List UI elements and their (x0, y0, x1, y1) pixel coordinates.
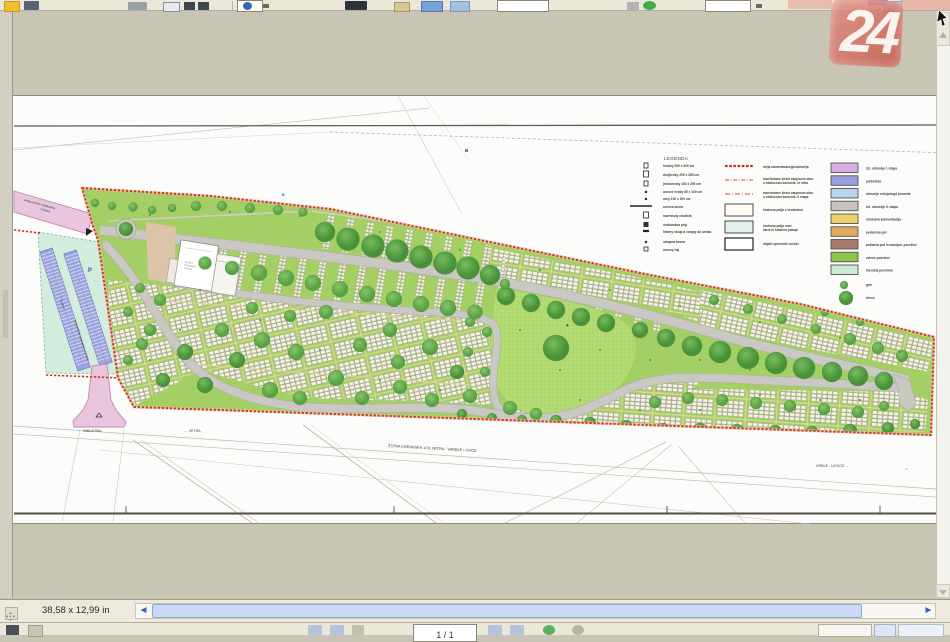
svg-text:dvojhroby 200 x 280 cm: dvojhroby 200 x 280 cm (663, 173, 699, 177)
svg-text:VRBLE - LEVICE →: VRBLE - LEVICE → (816, 464, 849, 468)
svg-text:B: B (282, 193, 285, 197)
svg-text:hrobky 200 x 300 cm: hrobky 200 x 300 cm (663, 164, 694, 168)
svg-text:+: + (566, 323, 569, 329)
svg-text:žel. območje II. etapa: žel. območje II. etapa (866, 205, 898, 209)
svg-text:drevo: drevo (866, 296, 875, 300)
svg-text:peskovna pot: peskovna pot (866, 230, 887, 234)
svg-text:meja obravnavanega območja: meja obravnavanega območja (763, 165, 809, 169)
svg-text:urny 100 x 100 cm: urny 100 x 100 cm (663, 197, 691, 201)
svg-text:vodovodna prip.: vodovodna prip. (663, 223, 688, 227)
svg-text:žarni in klasični pokopi: žarni in klasični pokopi (763, 228, 798, 232)
svg-text:P: P (88, 268, 92, 274)
svg-text:urnove hroby 80 x 100 cm: urnove hroby 80 x 100 cm (663, 190, 702, 194)
svg-text:s obsluznou komunik. II etapa: s obsluznou komunik. II etapa (763, 195, 809, 199)
svg-text:ŽSTNA KORANSKA 1/31 VETRA -: ŽSTNA KORANSKA 1/31 VETRA - VARBLE • ZVI… (388, 443, 477, 453)
svg-text:parkirišča: parkirišča (866, 179, 881, 183)
svg-text:← VETRA: ← VETRA (184, 429, 201, 433)
svg-text:hlavny vstup a vstupy do areal: hlavny vstup a vstupy do arealu (663, 230, 711, 234)
svg-text:zd: zd (905, 467, 908, 471)
svg-text:LEGENDA: LEGENDA (664, 156, 689, 161)
svg-text:s obsluznou komunik. in infra: s obsluznou komunik. in infra (763, 181, 808, 185)
svg-text:obslužna komunikacija: obslužna komunikacija (866, 218, 901, 222)
svg-text:urnovy haj: urnovy haj (663, 248, 679, 252)
svg-text:navrhnuty chodnik: navrhnuty chodnik (663, 214, 692, 218)
svg-text:območje mirujočega prometa: območje mirujočega prometa (866, 192, 911, 196)
svg-text:urnova stena: urnova stena (663, 205, 683, 209)
svg-text:travnata površina: travnata površina (866, 269, 893, 273)
svg-text:zelene površine: zelene površine (866, 256, 890, 260)
svg-text:objekt spremnih vsebin: objekt spremnih vsebin (763, 242, 799, 246)
svg-text:požiarna pot in manipul. površ: požiarna pot in manipul. površine (866, 243, 917, 247)
svg-text:VAB•LETINA: VAB•LETINA (83, 429, 102, 433)
svg-text:grm: grm (866, 283, 872, 287)
svg-text:žel. območje I. etapa: žel. območje I. etapa (866, 167, 897, 171)
svg-text:jednohroby 100 x 250 cm: jednohroby 100 x 250 cm (662, 182, 701, 186)
svg-text:vstupna brana: vstupna brana (663, 240, 685, 244)
svg-text:hrobova polja s hrobovimi: hrobova polja s hrobovimi (763, 208, 803, 212)
svg-text:B: B (465, 148, 469, 153)
